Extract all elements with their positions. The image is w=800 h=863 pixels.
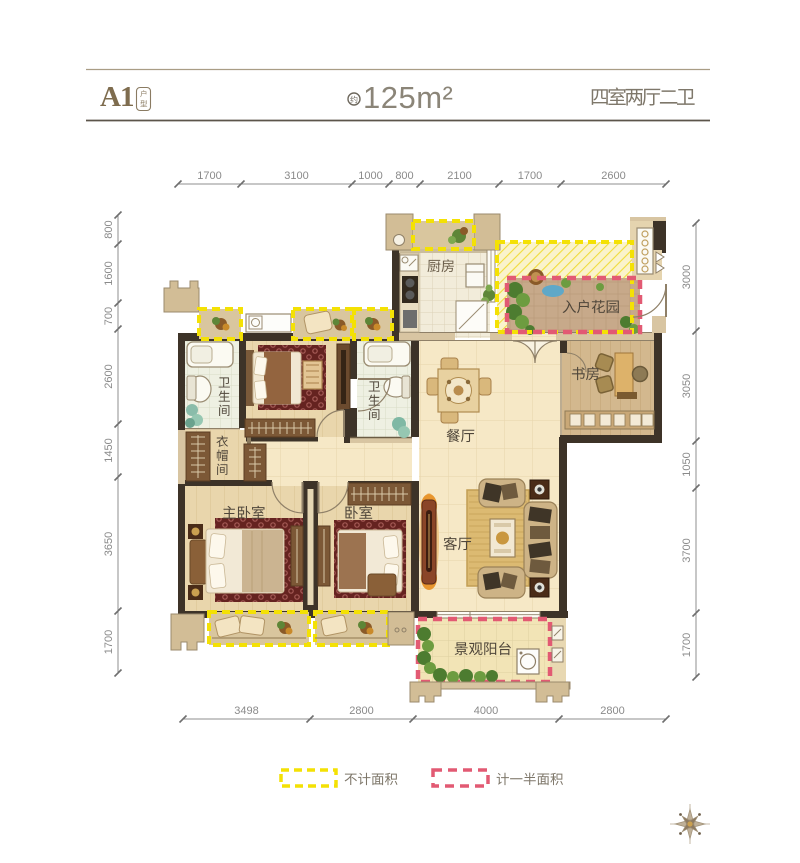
svg-text:1450: 1450 — [103, 438, 115, 462]
svg-text:3100: 3100 — [284, 170, 308, 182]
svg-text:3700: 3700 — [681, 538, 693, 562]
svg-text:1700: 1700 — [103, 630, 115, 654]
svg-text:1000: 1000 — [358, 170, 382, 182]
svg-text:3650: 3650 — [103, 532, 115, 556]
svg-text:A1: A1 — [100, 81, 133, 113]
svg-text:2800: 2800 — [600, 705, 624, 717]
svg-text:4000: 4000 — [474, 705, 498, 717]
svg-text:1700: 1700 — [518, 170, 542, 182]
svg-text:2600: 2600 — [103, 364, 115, 388]
svg-text:2600: 2600 — [601, 170, 625, 182]
svg-text:1050: 1050 — [681, 452, 693, 476]
svg-text:125m²: 125m² — [363, 80, 453, 115]
svg-text:3000: 3000 — [681, 265, 693, 289]
svg-text:700: 700 — [103, 307, 115, 325]
svg-text:1700: 1700 — [681, 633, 693, 657]
svg-text:800: 800 — [103, 220, 115, 238]
svg-text:3498: 3498 — [234, 705, 258, 717]
svg-text:1600: 1600 — [103, 261, 115, 285]
svg-text:800: 800 — [395, 170, 413, 182]
svg-text:2100: 2100 — [447, 170, 471, 182]
svg-text:3050: 3050 — [681, 374, 693, 398]
svg-text:1700: 1700 — [197, 170, 221, 182]
svg-text:2800: 2800 — [349, 705, 373, 717]
